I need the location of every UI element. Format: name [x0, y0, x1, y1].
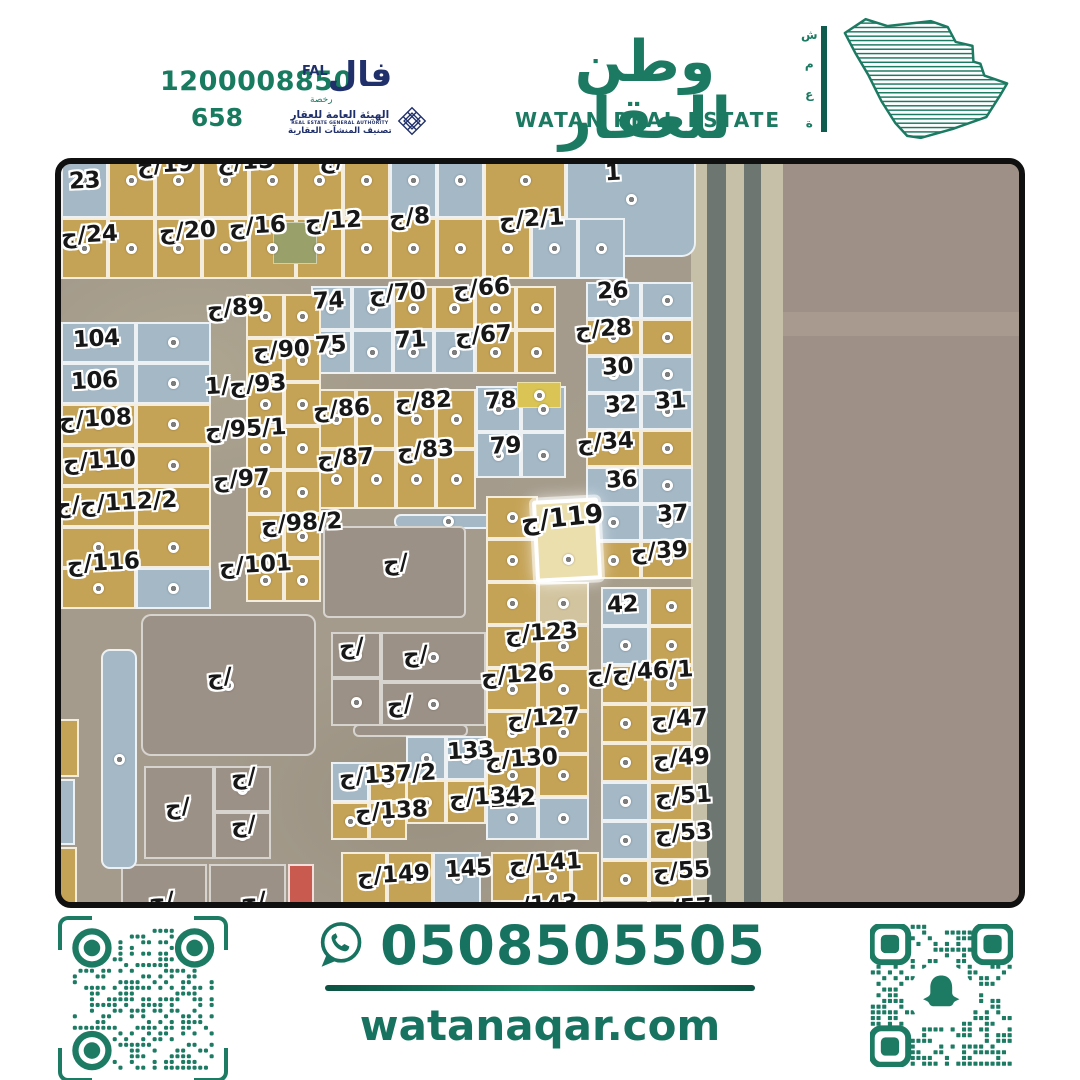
plot-dot — [608, 555, 619, 566]
plot-label: 30 — [601, 355, 633, 380]
plot-label: ج‎/ — [240, 889, 266, 908]
plot-dot — [620, 718, 631, 729]
plot-dot — [666, 640, 677, 651]
plot-label: 26 — [596, 279, 628, 304]
plot-dot — [531, 303, 542, 314]
highlighted-plot: ج‎/119 — [532, 497, 602, 582]
plot-dot — [361, 175, 372, 186]
saudi-map-logo — [836, 12, 1014, 150]
plot-dot — [297, 575, 308, 586]
plot-dot — [662, 295, 673, 306]
plot-label: ج‎/16 — [228, 214, 286, 240]
plot-dot — [168, 460, 179, 471]
plot-dot — [455, 243, 466, 254]
plot-label: 133 — [446, 739, 494, 764]
plot-label: 78 — [484, 389, 516, 414]
plot-label: ج‎/ — [386, 693, 412, 717]
plot-dot — [126, 243, 137, 254]
plot-dot — [538, 404, 549, 415]
footer: 0508505505 watanaqar.com — [0, 908, 1080, 1080]
fal-license-number: 1200008850 — [160, 66, 295, 97]
plot-dot — [662, 480, 673, 491]
map-canvas: ج‎/119 23ج‎/19ج‎/15ج‎/1ج‎/24ج‎/20ج‎/16ج‎… — [61, 164, 1019, 902]
plot-label: ج‎/66 — [452, 276, 510, 302]
plot-label: ج‎/8 — [388, 205, 430, 230]
plot-dot — [361, 243, 372, 254]
plot-label: ج‎/123 — [504, 620, 578, 647]
plot-label: 75 — [314, 333, 346, 358]
plot-dot — [620, 874, 631, 885]
side-letter: ش — [801, 28, 818, 42]
plot-dot — [93, 583, 104, 594]
plot-dot — [168, 337, 179, 348]
plot-map: ج‎/119 23ج‎/19ج‎/15ج‎/1ج‎/24ج‎/20ج‎/16ج‎… — [55, 158, 1025, 908]
plot-dot — [531, 347, 542, 358]
plot-label: 23 — [68, 169, 100, 194]
plot-label: ج‎/ — [164, 795, 190, 819]
plot-dot — [507, 512, 518, 523]
plot-dot — [297, 487, 308, 498]
plot-label: ج‎/55 — [652, 859, 710, 885]
plot-label: ج‎/101 — [218, 552, 292, 579]
plot-label: ج‎/138 — [354, 798, 428, 825]
plot-dot — [168, 378, 179, 389]
plot-label: ج‎/53 — [654, 821, 712, 847]
plot-dot — [371, 474, 382, 485]
plot-label: ج‎/90 — [252, 338, 310, 364]
plot-dot — [626, 194, 637, 205]
map-cell — [55, 719, 79, 777]
plot-label: ج‎/49 — [652, 746, 710, 772]
plot-label: ج‎/34 — [576, 430, 634, 456]
rega-logo: الهيئة العامة للعقار REAL ESTATE GENERAL… — [288, 106, 427, 140]
plot-dot — [490, 303, 501, 314]
plot-label: ج‎/28 — [574, 317, 632, 343]
plot-dot — [367, 347, 378, 358]
plot-dot — [443, 516, 454, 527]
plot-label: 1 — [604, 162, 621, 186]
plot-dot — [331, 474, 342, 485]
plot-label: ج‎/19 — [136, 158, 194, 178]
plot-label: ج‎/57 — [654, 896, 712, 908]
plot-label: ج‎/ — [382, 551, 408, 575]
plot-label: ج‎/ — [230, 765, 256, 789]
plot-dot — [260, 399, 271, 410]
plot-label: ج‎/130 — [484, 746, 558, 773]
plot-dot — [314, 175, 325, 186]
fal-logo-en: FAL — [302, 64, 328, 79]
footer-divider — [325, 985, 755, 991]
plot-dot — [126, 175, 137, 186]
bracket-icon — [58, 916, 92, 950]
qr-code-website — [64, 920, 222, 1078]
plot-dot — [267, 175, 278, 186]
license-numbers: 1200008850 658 — [160, 66, 295, 132]
header: 1200008850 658 FAL فال رخصة الهيئة العام… — [0, 0, 1080, 158]
plot-dot — [168, 419, 179, 430]
plot-dot — [549, 243, 560, 254]
map-cell — [744, 158, 761, 908]
plot-dot — [662, 369, 673, 380]
plot-label: ج‎/143 — [504, 892, 578, 908]
plot-dot — [168, 542, 179, 553]
plot-label: ج‎/116 — [66, 550, 140, 577]
plot-label: ج‎/89 — [206, 296, 264, 322]
brand-side-letters: ش م ع ة — [801, 28, 818, 130]
plot-dot — [507, 813, 518, 824]
plot-label: ج‎/95/1 — [204, 416, 286, 443]
plot-dot — [620, 796, 631, 807]
map-cell — [601, 899, 649, 908]
rega-title-ar: الهيئة العامة للعقار — [290, 109, 389, 121]
plot-label: ج‎/ج‎/46/1 — [586, 658, 693, 687]
plot-dot — [168, 583, 179, 594]
plot-dot — [451, 414, 462, 425]
plot-label: 42 — [606, 593, 638, 618]
fal-logo-ar: فال — [328, 58, 393, 92]
plot-label: ج‎/15 — [216, 158, 274, 175]
plot-label: 79 — [489, 434, 521, 459]
plot-label: 104 — [72, 327, 120, 352]
fal-logo: FAL فال — [302, 58, 392, 92]
map-cell — [55, 779, 75, 845]
plot-label: 37 — [656, 502, 688, 527]
plot-label: ج‎/127 — [506, 705, 580, 732]
plot-dot — [534, 390, 545, 401]
qr-code-snapchat — [862, 920, 1020, 1078]
website-url: watanaqar.com — [360, 1001, 720, 1050]
plot-dot — [507, 598, 518, 609]
plot-dot — [563, 554, 575, 566]
plot-dot — [114, 754, 125, 765]
map-cell — [779, 158, 1025, 908]
plot-dot — [408, 175, 419, 186]
plot-dot — [449, 303, 460, 314]
plot-dot — [596, 243, 607, 254]
plot-label: ج‎/134 — [448, 784, 522, 811]
plot-label: 106 — [70, 369, 118, 394]
plot-label: ج‎/51 — [654, 784, 712, 810]
plot-label: ج‎/108 — [58, 406, 132, 433]
plot-dot — [502, 243, 513, 254]
plot-dot — [558, 813, 569, 824]
plot-label: 31 — [654, 389, 686, 414]
footer-contact: 0508505505 watanaqar.com — [290, 914, 790, 1050]
plot-label: ج‎/149 — [356, 862, 430, 889]
plot-label: 36 — [605, 468, 637, 493]
plot-label: ج‎/ — [338, 635, 364, 659]
plot-dot — [351, 697, 362, 708]
plot-dot — [267, 243, 278, 254]
side-letter: ع — [805, 87, 813, 101]
plot-label: ج‎/83 — [396, 438, 454, 464]
plot-label: 71 — [394, 328, 426, 353]
plot-label: ج‎/97 — [212, 467, 270, 493]
plot-dot — [507, 555, 518, 566]
bracket-icon — [194, 1048, 228, 1080]
plot-dot — [558, 598, 569, 609]
brand-divider-bar — [821, 26, 827, 132]
plot-dot — [411, 414, 422, 425]
plot-label: ج‎/ — [318, 158, 344, 174]
plot-dot — [490, 347, 501, 358]
plot-dot — [538, 450, 549, 461]
rega-subtitle-ar: تصنيف المنشآت العقارية — [288, 127, 392, 137]
plot-dot — [411, 474, 422, 485]
plot-label: ج‎/12 — [304, 209, 362, 235]
plot-label: 145 — [444, 857, 492, 882]
plot-label: 1/ج‎/93 — [204, 372, 286, 399]
plot-label: ج‎/24 — [60, 223, 118, 249]
plot-dot — [297, 443, 308, 454]
plot-label: ج‎/ — [230, 813, 256, 837]
classification-number: 658 — [160, 103, 295, 132]
plot-dot — [620, 757, 631, 768]
plot-label: ج‎/98/2 — [260, 510, 342, 537]
flyer: 1200008850 658 FAL فال رخصة الهيئة العام… — [0, 0, 1080, 1080]
plot-dot — [520, 175, 531, 186]
plot-dot — [260, 443, 271, 454]
plot-dot — [620, 640, 631, 651]
plot-label: ج‎/137/2 — [338, 761, 436, 789]
plot-label: 74 — [312, 289, 344, 314]
map-cell — [288, 864, 314, 908]
plot-dot — [455, 175, 466, 186]
plot-dot — [558, 770, 569, 781]
plot-dot — [666, 601, 677, 612]
side-letter: م — [805, 57, 814, 71]
plot-label: ج‎/126 — [480, 662, 554, 689]
plot-dot — [297, 399, 308, 410]
plot-label: ج‎/ — [148, 889, 174, 908]
plot-dot — [608, 517, 619, 528]
plot-dot — [662, 332, 673, 343]
plot-label: ج‎/86 — [312, 397, 370, 423]
rega-text: الهيئة العامة للعقار REAL ESTATE GENERAL… — [288, 109, 392, 137]
plot-label: ج‎/141 — [508, 850, 582, 877]
highlighted-plot-label: ج‎/119 — [520, 501, 605, 535]
map-cell — [55, 847, 77, 905]
plot-label: ج‎/39 — [630, 539, 688, 565]
map-cell — [437, 158, 484, 218]
plot-dot — [220, 243, 231, 254]
plot-dot — [408, 243, 419, 254]
plot-label: ج‎/87 — [316, 446, 374, 472]
plot-dot — [620, 835, 631, 846]
plot-dot — [345, 816, 356, 827]
plot-label: ج‎/47 — [650, 707, 708, 733]
plot-label: ج‎/82 — [394, 389, 452, 415]
map-cell — [779, 312, 1025, 336]
plot-dot — [451, 474, 462, 485]
plot-dot — [428, 699, 439, 710]
side-letter: ة — [806, 116, 813, 130]
whatsapp-icon — [314, 918, 366, 974]
plot-label: ج‎/ — [402, 643, 428, 667]
bracket-icon — [194, 916, 228, 950]
plot-dot — [428, 652, 439, 663]
plot-label: ج‎/2/1 — [498, 206, 565, 232]
bracket-icon — [58, 1048, 92, 1080]
plot-dot — [314, 243, 325, 254]
plot-label: ج‎/20 — [158, 219, 216, 245]
plot-dot — [662, 443, 673, 454]
plot-label: 32 — [604, 393, 636, 418]
plot-dot — [297, 311, 308, 322]
plot-dot — [558, 684, 569, 695]
plot-label: ج‎/110 — [62, 448, 136, 475]
plot-label: ج‎/70 — [368, 281, 426, 307]
plot-label: ج‎/67 — [454, 323, 512, 349]
fal-logo-subtext: رخصة — [310, 95, 333, 105]
brand-name-english: WATAN REAL ESTATE — [508, 108, 788, 132]
whatsapp-number: 0508505505 — [380, 914, 766, 977]
rega-diamond-icon — [397, 106, 427, 140]
plot-label: ج‎/ — [206, 665, 232, 689]
plot-dot — [371, 414, 382, 425]
